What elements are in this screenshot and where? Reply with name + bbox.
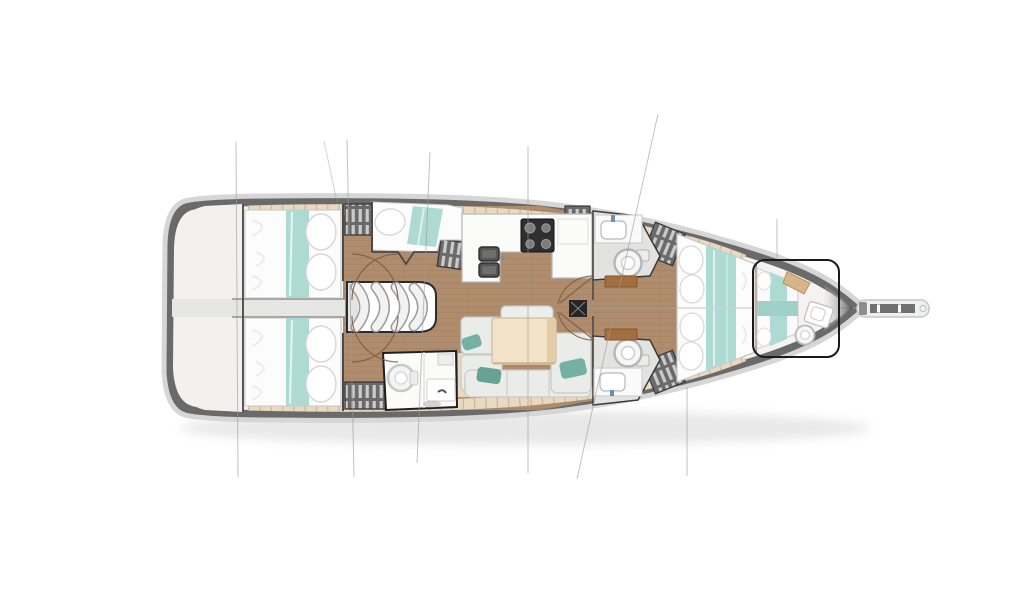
aft-cabin-port: [245, 210, 341, 298]
pillow: [679, 342, 703, 370]
deck-plan-figure: [0, 0, 1024, 600]
pillow: [680, 313, 704, 341]
mid-head: [383, 351, 469, 410]
pillow: [757, 328, 771, 346]
berth-teal-runner: [757, 301, 798, 316]
pillow: [306, 214, 336, 250]
pillow: [306, 254, 336, 290]
toilet: [796, 326, 815, 345]
faucet-icon: [501, 256, 505, 260]
salon-table: [492, 318, 556, 364]
pillow: [680, 275, 704, 303]
mast-step: [569, 300, 587, 317]
pillow: [306, 366, 336, 402]
deck-plan-canvas: [0, 0, 1024, 600]
engine-compartment: [172, 299, 345, 317]
bowsprit-anchor-roller: [857, 300, 929, 317]
stove: [521, 219, 554, 252]
pillow: [306, 326, 336, 362]
faucet-icon: [611, 215, 615, 222]
pillow: [757, 272, 771, 290]
rigging-line: [324, 141, 337, 202]
faucet-icon: [610, 390, 614, 396]
pillow: [679, 246, 703, 274]
washbasin: [601, 221, 626, 239]
aft-cabin-starboard: [245, 318, 341, 406]
washbasin: [600, 373, 625, 391]
shelf: [438, 354, 453, 365]
